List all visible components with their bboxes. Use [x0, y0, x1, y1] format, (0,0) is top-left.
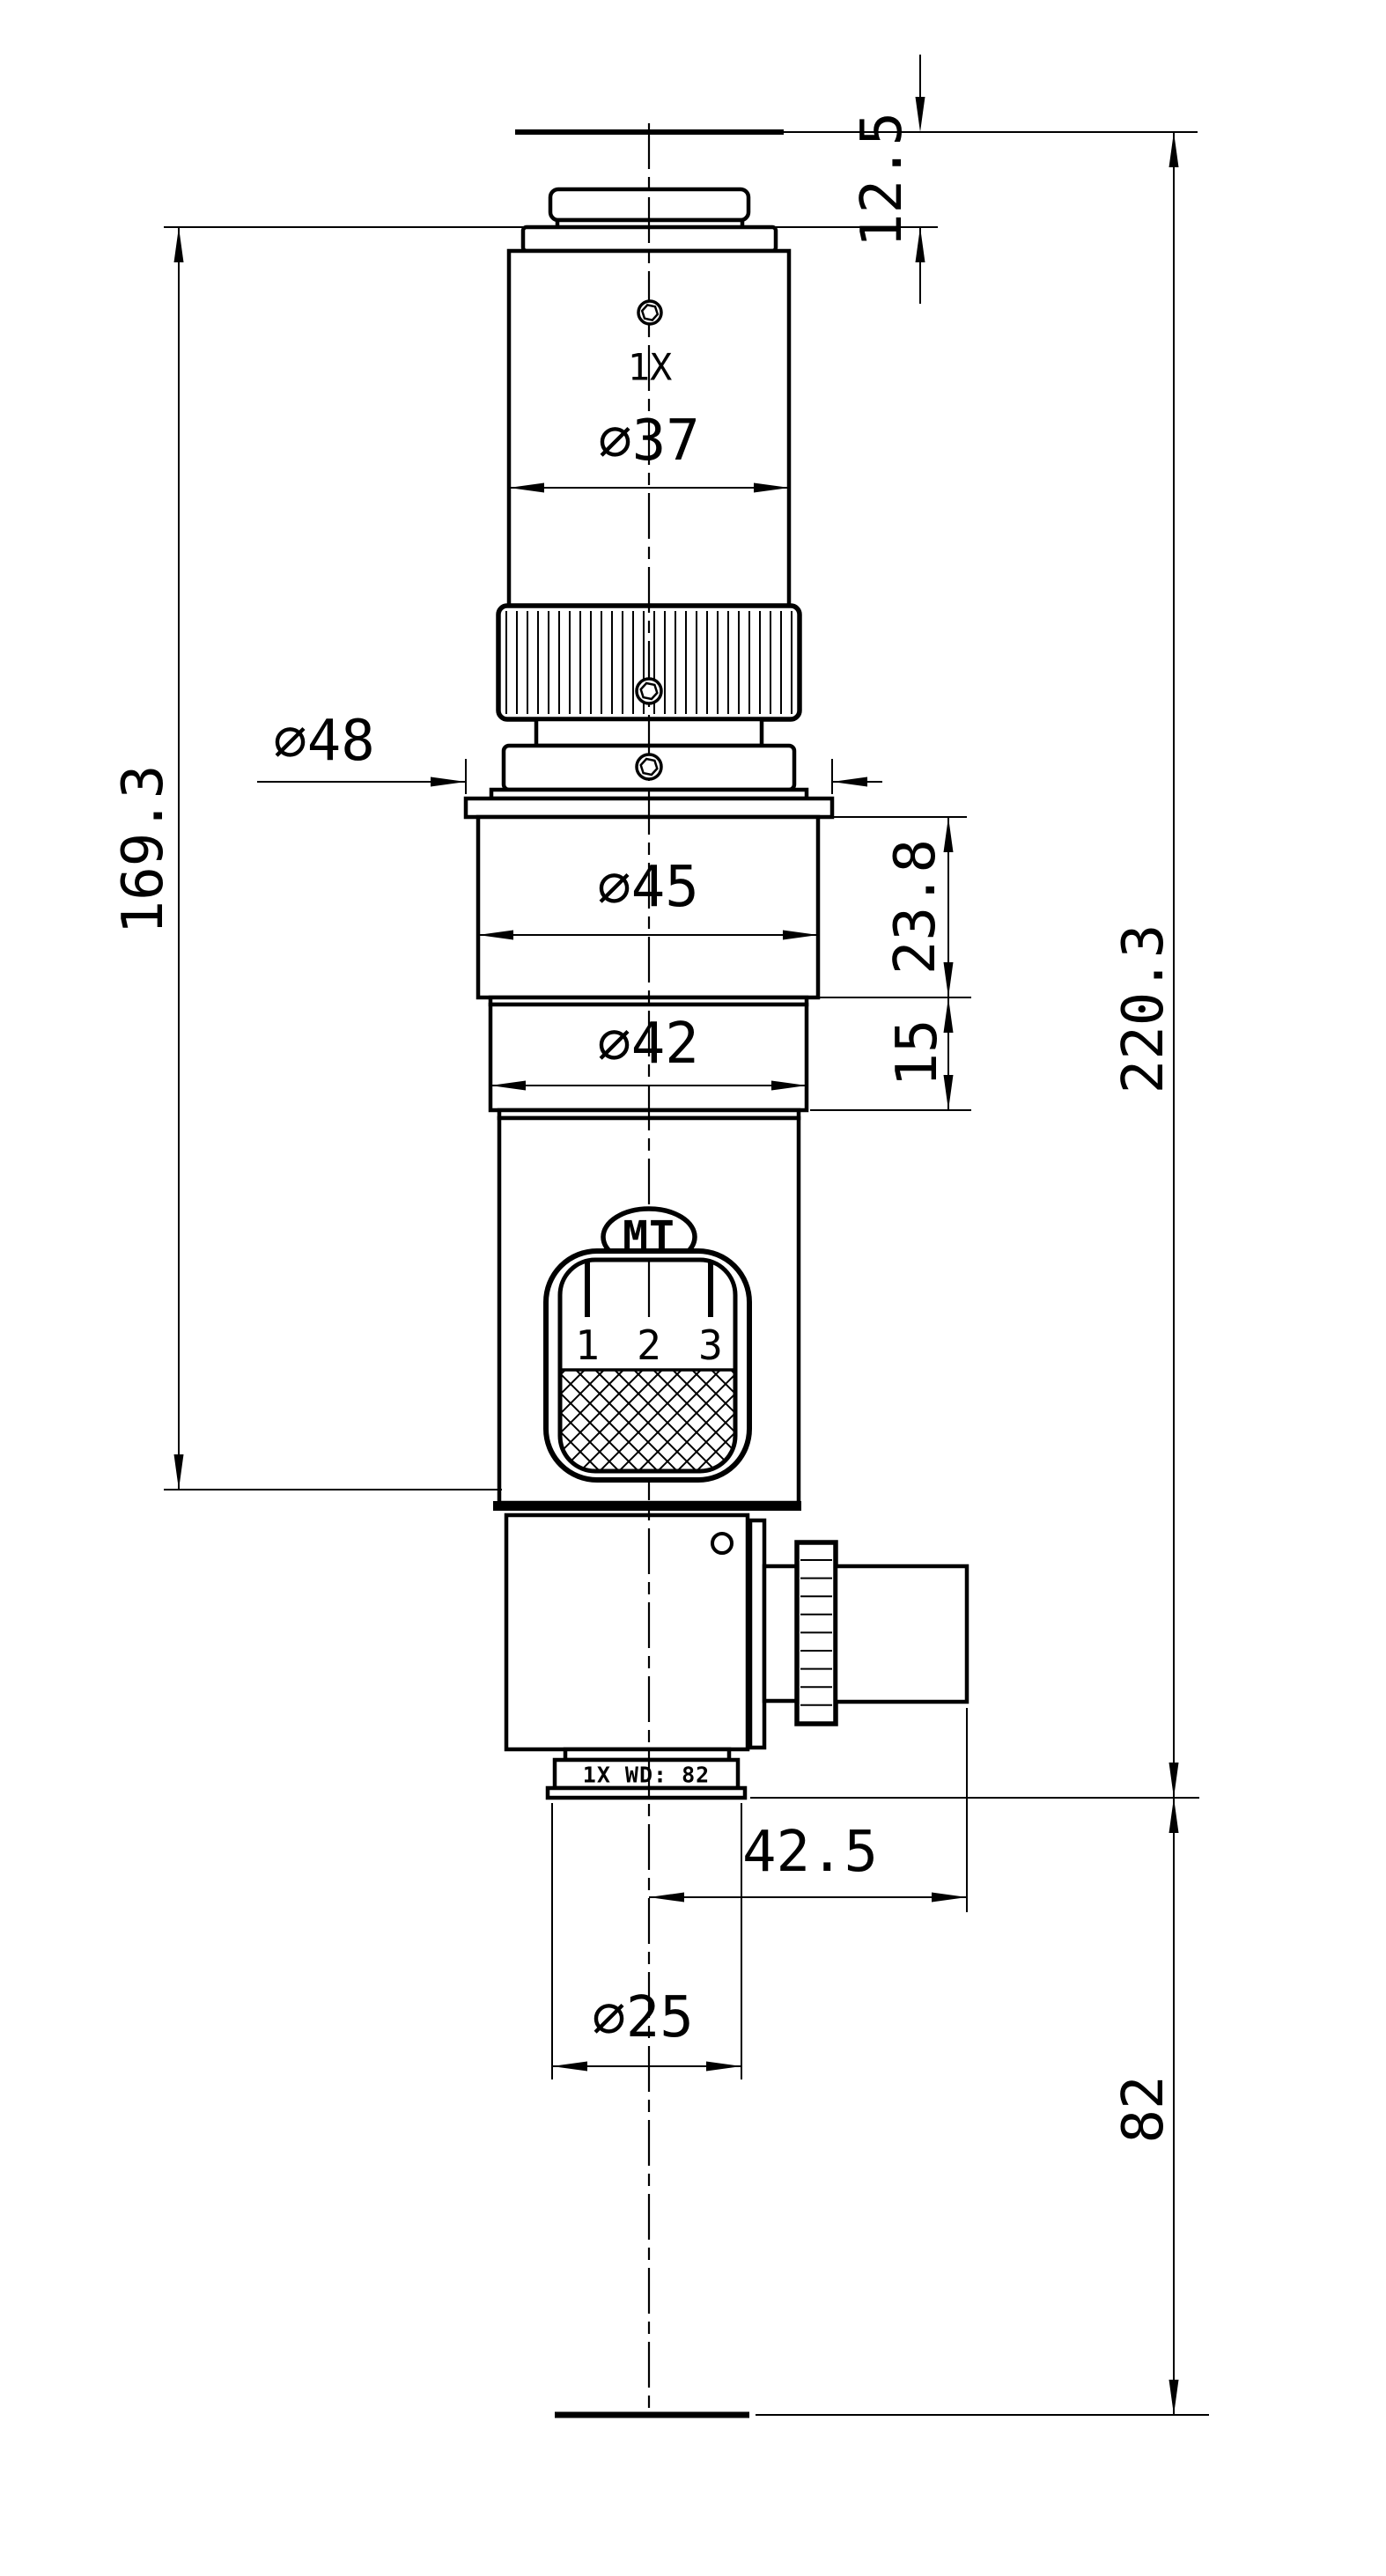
- side-port-stem: [764, 1566, 797, 1701]
- technical-drawing-page: MT 1 2 3 1X 1X WD: 82 12.5: [0, 0, 1386, 2576]
- screw-hole: [712, 1534, 732, 1553]
- dim-23-8: 23.8: [810, 817, 971, 997]
- dim-48-text: ∅48: [273, 709, 375, 774]
- dim-15: 15: [810, 997, 971, 1110]
- dim-25: ∅25: [552, 1803, 741, 2079]
- zoom-scale-number-2: 2: [637, 1321, 661, 1369]
- dim-12-5: 12.5: [850, 55, 925, 304]
- dim-45-text: ∅45: [597, 855, 699, 920]
- dim-169-3-text: 169.3: [111, 765, 176, 935]
- dim-82: 82: [1111, 1798, 1179, 2415]
- dim-169-3: 169.3: [111, 227, 502, 1490]
- dim-42-text: ∅42: [597, 1012, 699, 1077]
- top-magnification-label: 1X: [628, 346, 673, 389]
- microscope-lens-dimension-drawing: MT 1 2 3 1X 1X WD: 82 12.5: [0, 0, 1386, 2576]
- mounting-face-band: [493, 1501, 801, 1511]
- dim-82-text: 82: [1111, 2075, 1176, 2143]
- zoom-scale-number-3: 3: [698, 1321, 723, 1369]
- dim-37-text: ∅37: [598, 408, 700, 474]
- side-port-plate: [750, 1520, 764, 1748]
- dim-15-text: 15: [885, 1019, 950, 1086]
- dim-220-3-text: 220.3: [1111, 924, 1176, 1094]
- dim-23-8-text: 23.8: [883, 839, 948, 975]
- side-port-cylinder: [836, 1566, 967, 1702]
- zoom-scale-number-1: 1: [575, 1321, 600, 1369]
- dim-12-5-text: 12.5: [850, 112, 915, 247]
- objective-marking-label: 1X WD: 82: [583, 1763, 710, 1788]
- camera-block: [506, 1515, 748, 1749]
- objective-flange: [548, 1788, 745, 1798]
- dim-42-5-text: 42.5: [742, 1820, 878, 1885]
- dim-25-text: ∅25: [592, 1985, 694, 2050]
